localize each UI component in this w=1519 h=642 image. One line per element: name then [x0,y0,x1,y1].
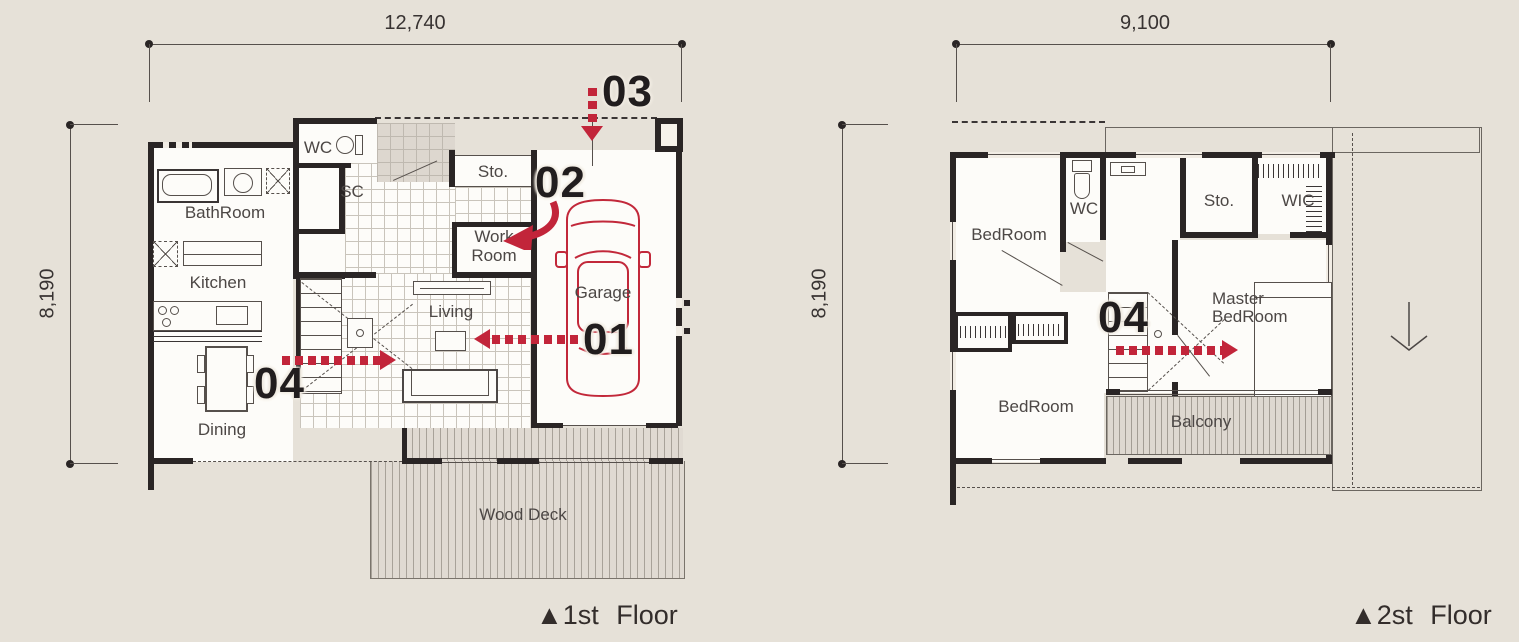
wall-segment [1040,458,1106,464]
wic-hanger-icon [1258,164,1322,178]
balcony-label: Balcony [1156,413,1246,431]
wall-segment [950,462,956,505]
window-line [1262,154,1320,155]
hall2-floor [1106,158,1180,292]
storage2-label: Sto. [1192,192,1246,210]
window [1136,152,1202,158]
wall-segment [950,458,992,464]
toilet-icon [1070,160,1094,202]
dimension-extension [842,124,888,125]
wall-segment [1100,152,1106,240]
site-boundary-dashed [952,121,1105,123]
balcony-door-line [1106,390,1332,391]
window [950,352,956,390]
window [950,222,956,260]
floor-plan-image: 12,740 8,190 [0,0,1519,642]
window [1262,152,1320,158]
window [988,152,1060,158]
wic-label: WIC [1272,192,1324,210]
wall-segment [950,152,956,468]
roof-dashed-line [1352,133,1353,485]
window-line [992,459,1040,460]
bedroom-upper-label: BedRoom [962,226,1056,244]
stair-void-circle [1154,330,1162,338]
window [1326,245,1332,285]
master-bedroom-label-line2: BedRoom [1212,308,1296,326]
window-line [952,222,953,260]
dimension-dot [1327,40,1335,48]
window-line [992,463,1040,464]
window-line [1328,245,1329,285]
closet-icon [1012,312,1068,344]
dimension-extension [1330,44,1331,102]
floor2-width-dimension: 9,100 [1080,12,1210,35]
triangle-icon: ▲ [1350,600,1377,630]
wall-segment [1106,389,1120,395]
balcony-door-line [1106,394,1332,395]
closet-icon [954,312,1012,352]
wall-segment [1180,158,1186,238]
wall-segment [1180,232,1256,238]
window-line [1136,154,1202,155]
floor2-caption: ▲2st Floor [1350,600,1492,631]
marker-04-floor2: 04 [1098,296,1149,340]
door-swing-line [1068,242,1104,262]
dimension-extension [842,463,888,464]
floor2-plan: 9,100 8,190 [0,0,1519,642]
down-arrow-icon [1383,300,1435,362]
wall-segment [1318,389,1332,395]
window-line [952,352,953,390]
arrow-04-floor2-dashes [1116,346,1222,355]
arrow-04-floor2-head [1222,340,1238,360]
dimension-line [842,125,843,465]
dimension-line [956,44,1331,45]
hall-shelf [1110,162,1146,176]
dimension-dot [838,460,846,468]
lower-floor-outline-dashed [952,487,1480,488]
wall-segment [1240,458,1332,464]
dimension-extension [956,44,957,102]
dimension-dot [838,121,846,129]
bedroom-lower-label: BedRoom [988,398,1084,416]
window-line [988,154,1060,155]
wc2-label: WC [1066,200,1102,218]
floor2-caption-text: 2st Floor [1377,600,1492,630]
master-bedroom-label-line1: Master [1212,290,1278,308]
wall-segment [1128,458,1182,464]
floor2-height-dimension: 8,190 [809,264,832,324]
